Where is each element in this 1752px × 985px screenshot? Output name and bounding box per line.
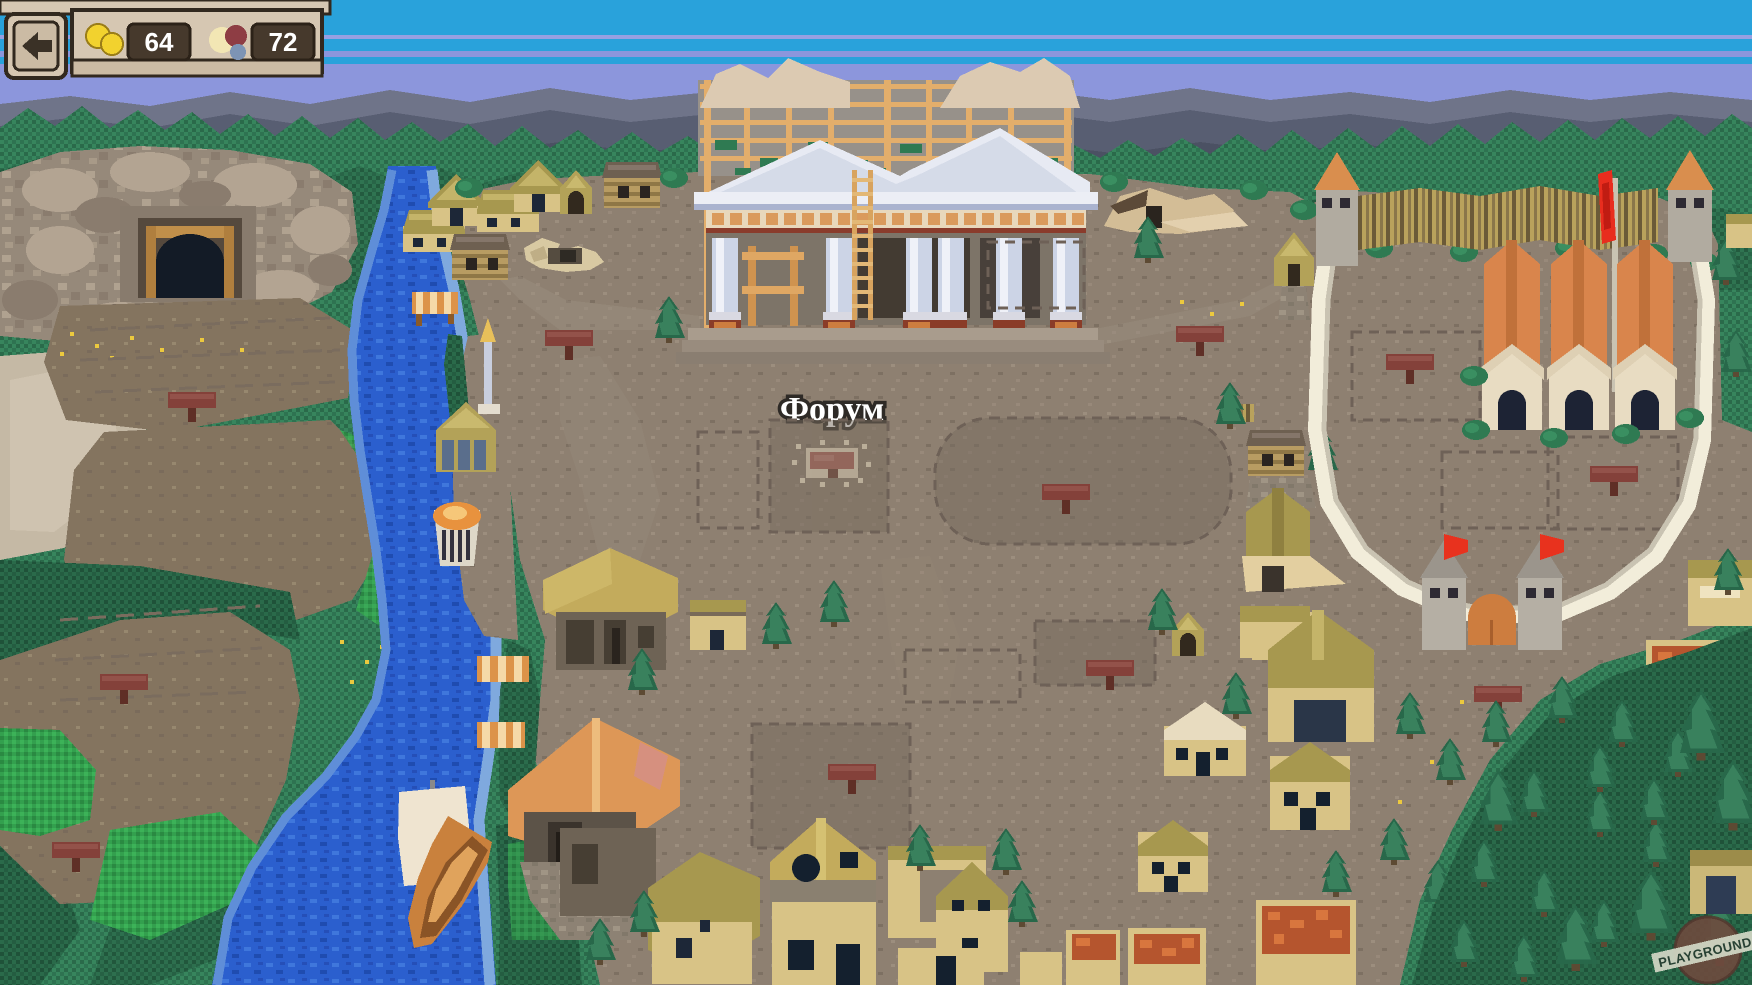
svg-text:64: 64 bbox=[145, 27, 174, 57]
svg-text:72: 72 bbox=[269, 27, 298, 57]
